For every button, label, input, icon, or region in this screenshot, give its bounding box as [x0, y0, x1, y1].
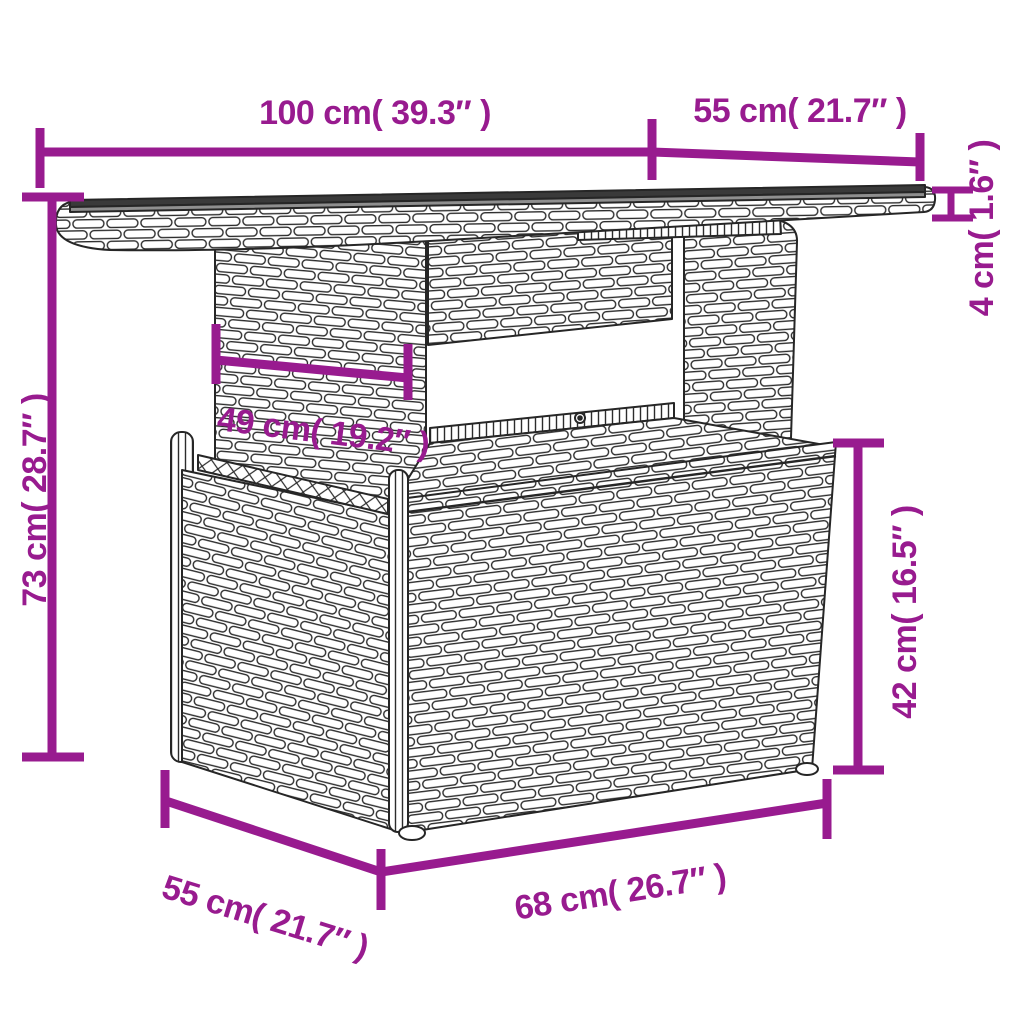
dim-base-height: 42 cm( 16.5″ ): [833, 443, 924, 770]
base-foot-right: [796, 763, 818, 775]
base-front-face: [392, 442, 836, 833]
dim-top-depth-lines: [652, 133, 920, 181]
dim-total-height: 73 cm( 28.7″ ): [16, 197, 84, 757]
table-base-box: [171, 432, 836, 840]
screw-center: [578, 416, 582, 420]
diagram-canvas: 100 cm( 39.3″ ) 55 cm( 21.7″ ) 4 cm( 1.6…: [0, 0, 1024, 1024]
dim-top-thickness-label: 4 cm( 1.6″ ): [963, 140, 1001, 317]
dim-top-thickness: 4 cm( 1.6″ ): [932, 140, 1001, 317]
dim-top-width: 100 cm( 39.3″ ): [40, 94, 652, 188]
table-illustration: [56, 185, 935, 840]
dimension-diagram: 100 cm( 39.3″ ) 55 cm( 21.7″ ) 4 cm( 1.6…: [0, 0, 1024, 1024]
dim-top-depth-label: 55 cm( 21.7″ ): [693, 92, 906, 130]
dim-total-height-label: 73 cm( 28.7″ ): [16, 393, 54, 606]
dim-base-depth-label: 55 cm( 21.7″ ): [158, 868, 373, 967]
dim-base-height-lines: [833, 443, 884, 770]
base-foot-left: [399, 826, 425, 840]
dim-base-width-label: 68 cm( 26.7″ ): [512, 857, 729, 928]
base-left-face: [182, 470, 403, 833]
dim-base-height-label: 42 cm( 16.5″ ): [886, 505, 924, 718]
dim-top-depth: 55 cm( 21.7″ ): [652, 92, 920, 181]
pedestal-right-column: [684, 218, 797, 446]
base-front-left-post: [389, 470, 408, 832]
dim-top-width-label: 100 cm( 39.3″ ): [259, 94, 491, 132]
